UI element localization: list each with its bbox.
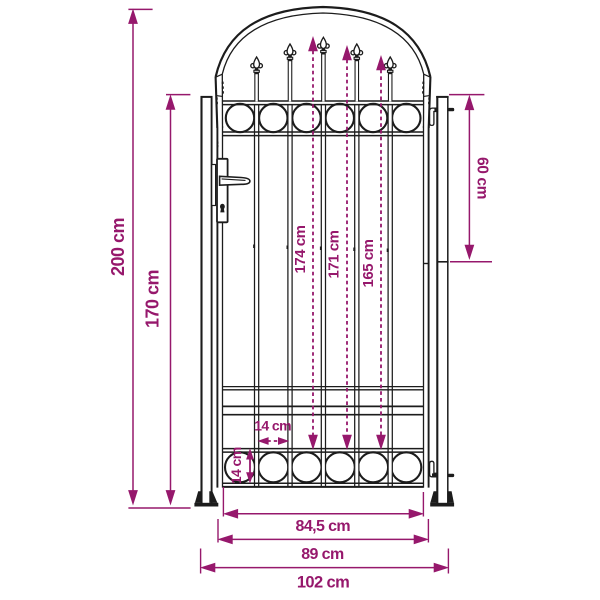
svg-text:174 cm: 174 cm bbox=[292, 225, 309, 273]
svg-text:89 cm: 89 cm bbox=[301, 546, 344, 563]
svg-text:14 cm: 14 cm bbox=[254, 418, 291, 434]
svg-text:200 cm: 200 cm bbox=[108, 218, 128, 276]
svg-text:171 cm: 171 cm bbox=[326, 230, 343, 278]
svg-text:102 cm: 102 cm bbox=[297, 574, 349, 592]
svg-text:60 cm: 60 cm bbox=[474, 157, 491, 199]
svg-text:84,5 cm: 84,5 cm bbox=[296, 518, 351, 535]
svg-text:14 cm: 14 cm bbox=[228, 447, 244, 484]
svg-text:165 cm: 165 cm bbox=[360, 239, 377, 287]
svg-text:170 cm: 170 cm bbox=[143, 270, 163, 328]
